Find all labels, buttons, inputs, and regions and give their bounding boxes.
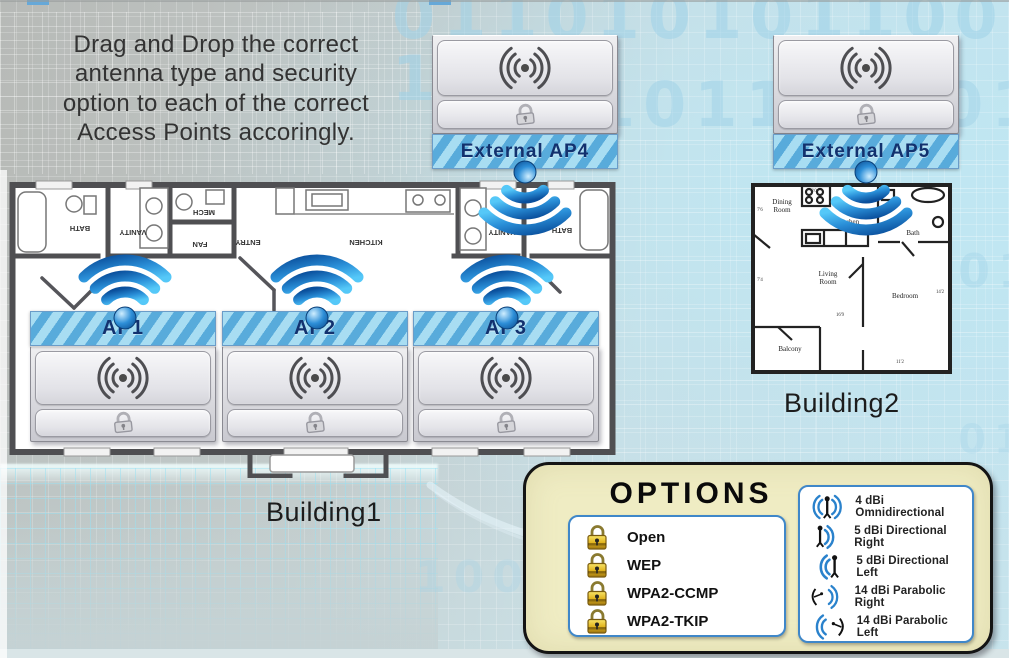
antenna-option-omnidirectional[interactable]: 4 dBi Omnidirectional: [800, 492, 972, 522]
stage: 0110101011001 1 1011 1001 1 1011 1001 01…: [0, 0, 1009, 658]
security-option-label: Open: [627, 529, 665, 546]
antenna-option-parabolic-right[interactable]: 14 dBi Parabolic Right: [800, 582, 972, 612]
parabolic-dish-icon: [806, 612, 850, 642]
ap5-panel: External AP5: [773, 35, 959, 169]
antenna-options-list: 4 dBi Omnidirectional 5 dBi Directional …: [798, 485, 974, 643]
antenna-option-label: 14 dBi Parabolic Left: [857, 615, 972, 639]
wireless-signal-icon: [818, 46, 914, 90]
antenna-option-directional-left[interactable]: 5 dBi Directional Left: [800, 552, 972, 582]
ap5-antenna-drop-zone[interactable]: [778, 40, 954, 96]
room-label: Dining: [772, 198, 792, 206]
directional-antenna-icon: [806, 522, 847, 552]
wireless-signal-icon: [75, 356, 171, 400]
gold-padlock-icon: [584, 523, 610, 551]
room-label: Balcony: [778, 345, 802, 353]
binary-digits: 1011: [592, 74, 797, 136]
ap1-antenna-drop-zone[interactable]: [35, 351, 211, 405]
ap4-security-drop-zone[interactable]: [437, 100, 613, 129]
room-label: BATH: [70, 224, 90, 233]
background-grid-fade: [0, 520, 438, 658]
instructions-line: antenna type and security: [20, 59, 412, 88]
room-label: Living: [819, 270, 838, 278]
instructions-line: option to each of the correct: [20, 89, 412, 118]
instructions-line: Drag and Drop the correct: [20, 30, 412, 59]
ap4-antenna-drop-zone[interactable]: [437, 40, 613, 96]
room-label: VANITY: [120, 228, 147, 237]
antenna-option-label: 5 dBi Directional Left: [856, 555, 972, 579]
binary-digits: 011: [958, 420, 1009, 460]
dimension-label: 11'2: [896, 360, 904, 365]
room-label: FAN: [193, 240, 208, 249]
ap3-wifi-signal-icon: [447, 238, 567, 333]
antenna-option-directional-right[interactable]: 5 dBi Directional Right: [800, 522, 972, 552]
padlock-outline-icon: [295, 410, 335, 436]
ap5-body: [773, 35, 959, 134]
security-option-label: WPA2-CCMP: [627, 585, 718, 602]
ap4-body: [432, 35, 618, 134]
ap2-wifi-signal-icon: [257, 238, 377, 333]
antenna-option-label: 14 dBi Parabolic Right: [855, 585, 972, 609]
directional-antenna-icon: [806, 552, 849, 582]
ap5-wifi-signal-icon: [806, 157, 926, 252]
ap2-antenna-drop-zone[interactable]: [227, 351, 403, 405]
security-option-wpa2-tkip[interactable]: WPA2-TKIP: [570, 607, 784, 635]
security-option-label: WPA2-TKIP: [627, 613, 708, 630]
padlock-outline-icon: [103, 410, 143, 436]
dimension-label: 7'4: [757, 278, 763, 283]
room-label: Bedroom: [892, 292, 919, 300]
ap5-security-drop-zone[interactable]: [778, 100, 954, 129]
gold-padlock-icon: [584, 551, 610, 579]
security-option-label: WEP: [627, 557, 661, 574]
left-edge-strip: [0, 170, 7, 658]
dimension-label: 7'6: [757, 208, 763, 213]
gold-padlock-icon: [584, 579, 610, 607]
ap1-security-drop-zone[interactable]: [35, 409, 211, 437]
dimension-label: 16'9: [836, 313, 845, 318]
wireless-signal-icon: [267, 356, 363, 400]
padlock-outline-icon: [505, 102, 545, 128]
gold-padlock-icon: [584, 607, 610, 635]
padlock-outline-icon: [486, 410, 526, 436]
ap2-security-drop-zone[interactable]: [227, 409, 403, 437]
top-hairline: [0, 0, 1009, 2]
room-label: Room: [773, 206, 791, 214]
room-label: MECH: [193, 208, 215, 217]
ap2-body: [222, 346, 408, 442]
security-option-wep[interactable]: WEP: [570, 551, 784, 579]
ap3-body: [413, 346, 599, 442]
instructions-line: Access Points accoringly.: [20, 118, 412, 147]
ap3-security-drop-zone[interactable]: [418, 409, 594, 437]
ap4-wifi-signal-icon: [465, 157, 585, 252]
ap4-panel: External AP4: [432, 35, 618, 169]
wireless-signal-icon: [477, 46, 573, 90]
building2-label: Building2: [784, 388, 900, 419]
security-options-list: Open WEP WPA2-CCMP: [568, 515, 786, 637]
parabolic-dish-icon: [806, 582, 848, 612]
ap1-body: [30, 346, 216, 442]
antenna-option-label: 4 dBi Omnidirectional: [855, 495, 972, 519]
padlock-outline-icon: [846, 102, 886, 128]
antenna-option-parabolic-left[interactable]: 14 dBi Parabolic Left: [800, 612, 972, 642]
security-option-wpa2-ccmp[interactable]: WPA2-CCMP: [570, 579, 784, 607]
dimension-label: 14'2: [936, 290, 945, 295]
ap1-wifi-signal-icon: [65, 238, 185, 333]
instructions-text: Drag and Drop the correct antenna type a…: [20, 30, 412, 147]
building1-label: Building1: [266, 497, 382, 528]
security-option-open[interactable]: Open: [570, 523, 784, 551]
room-label: Room: [819, 278, 837, 286]
options-panel: OPTIONS Open WEP: [523, 462, 993, 654]
antenna-option-label: 5 dBi Directional Right: [854, 525, 972, 549]
options-title: OPTIONS: [581, 477, 801, 511]
ap3-antenna-drop-zone[interactable]: [418, 351, 594, 405]
wireless-signal-icon: [458, 356, 554, 400]
omnidirectional-antenna-icon: [806, 492, 848, 522]
